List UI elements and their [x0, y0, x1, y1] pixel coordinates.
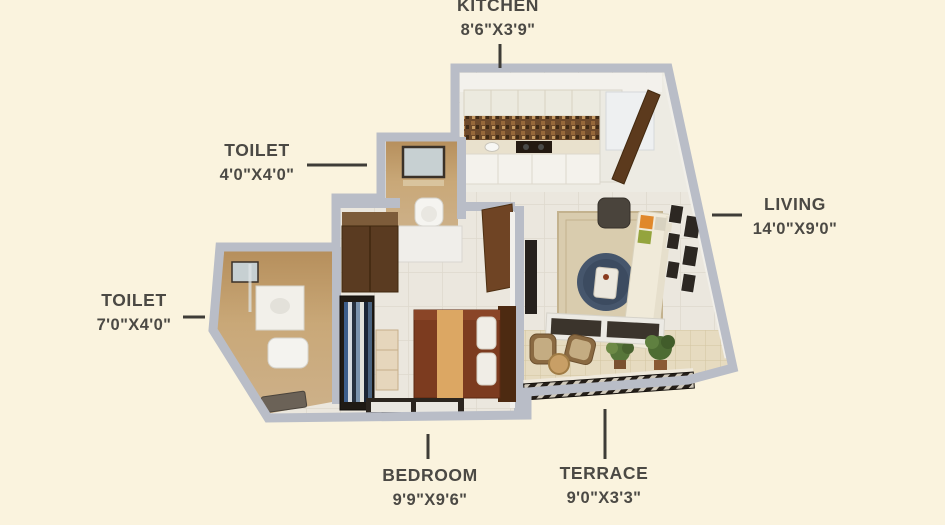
kitchen-back-wall	[460, 73, 662, 92]
room-name-kitchen: KITCHEN	[457, 0, 539, 18]
mirror	[232, 262, 258, 282]
room-label-bedroom: BEDROOM 9'9"X9'6"	[382, 463, 478, 513]
room-name-toilet-top: TOILET	[220, 138, 295, 163]
room-dimensions-bedroom: 9'9"X9'6"	[382, 488, 478, 513]
tv-panel	[525, 240, 537, 314]
pillow	[477, 353, 496, 385]
upper-cabinets	[464, 90, 600, 116]
cushion-cream	[654, 217, 667, 231]
window-pane	[371, 402, 411, 412]
cushion-orange	[639, 215, 653, 229]
room-dimensions-living: 14'0"X9'0"	[753, 217, 837, 242]
window-pane	[416, 402, 458, 412]
room-name-bedroom: BEDROOM	[382, 463, 478, 488]
bathroom-mirror	[403, 147, 444, 177]
toilet-top-right-wall	[457, 137, 466, 219]
room-label-living: LIVING 14'0"X9'0"	[753, 192, 837, 242]
wc-seat	[421, 206, 437, 222]
vanity-ledge	[403, 180, 444, 186]
room-label-kitchen: KITCHEN 8'6"X3'9"	[457, 0, 539, 43]
bedroom-room	[340, 296, 516, 416]
cooktop	[516, 141, 552, 153]
basin-bowl	[270, 298, 290, 314]
dresser	[376, 330, 398, 390]
room-dimensions-toilet-left: 7'0"X4'0"	[97, 313, 172, 338]
burner	[523, 144, 529, 150]
bed	[414, 306, 516, 402]
floorplan-graphic	[0, 0, 945, 525]
hanging-clothes	[344, 302, 372, 402]
floorplan-canvas: KITCHEN 8'6"X3'9" TOILET 4'0"X4'0" TOILE…	[0, 0, 945, 525]
terrace-table	[549, 354, 569, 374]
backsplash	[464, 116, 600, 140]
room-name-toilet-left: TOILET	[97, 288, 172, 313]
headboard	[498, 306, 516, 402]
table-decor	[603, 274, 609, 280]
room-dimensions-toilet-top: 4'0"X4'0"	[220, 163, 295, 188]
coffee-table	[593, 267, 618, 299]
room-dimensions-terrace: 9'0"X3'3"	[560, 486, 649, 511]
cushion-green	[637, 230, 651, 244]
room-label-toilet-left: TOILET 7'0"X4'0"	[97, 288, 172, 338]
sink	[485, 143, 499, 152]
room-label-terrace: TERRACE 9'0"X3'3"	[560, 461, 649, 511]
wc	[268, 338, 308, 368]
room-name-terrace: TERRACE	[560, 461, 649, 486]
room-label-toilet-top: TOILET 4'0"X4'0"	[220, 138, 295, 188]
bed-runner	[437, 310, 463, 398]
dark-armchair	[598, 198, 630, 228]
chair-cushion	[534, 338, 552, 360]
pillow	[477, 317, 496, 349]
burner	[538, 144, 544, 150]
room-dimensions-kitchen: 8'6"X3'9"	[457, 18, 539, 43]
room-name-living: LIVING	[753, 192, 837, 217]
